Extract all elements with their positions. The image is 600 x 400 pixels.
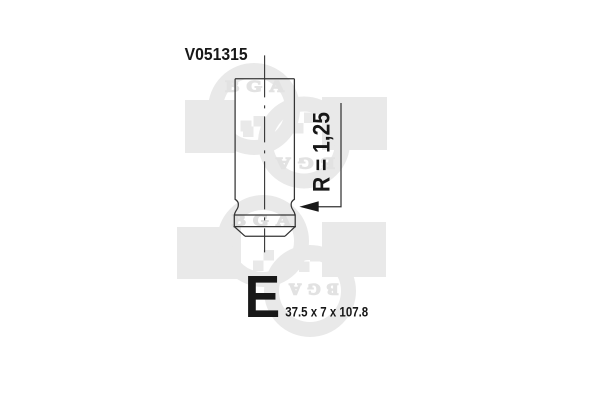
svg-text:R = 1,25: R = 1,25 — [308, 112, 335, 192]
svg-text:V051315: V051315 — [185, 44, 248, 64]
svg-text:BGA: BGA — [283, 280, 338, 299]
svg-text:37.5 x 7 x 107.8: 37.5 x 7 x 107.8 — [285, 303, 368, 319]
svg-text:E: E — [245, 263, 281, 329]
